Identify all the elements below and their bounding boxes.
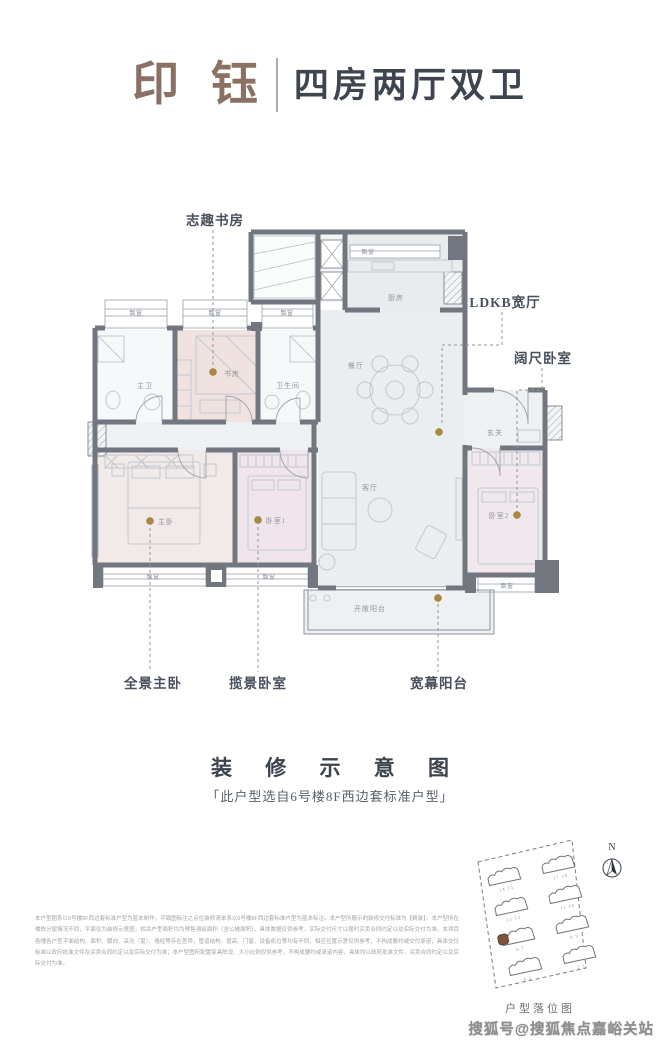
room-label-living: 客厅: [362, 483, 378, 492]
site-buildings: 14 15 17 18 13 12 11 10 6 7 8 9: [487, 854, 598, 984]
north-arrow: N: [603, 842, 621, 877]
callout-view-bedroom: 揽景卧室: [229, 675, 287, 691]
building: 13 12: [494, 896, 530, 924]
watermark: 搜狐号@搜狐焦点嘉峪关站: [394, 1018, 654, 1039]
floorplan-page: 印 钰 四房两厅双卫: [0, 0, 660, 1046]
room-label-foyer: 玄关: [487, 428, 503, 437]
callout-ldkb: LDKB宽厅: [469, 294, 540, 310]
header: 印 钰 四房两厅双卫: [0, 58, 660, 112]
room-label-dining: 餐厅: [348, 361, 364, 370]
svg-text:8 9: 8 9: [570, 933, 579, 940]
building: 2 1: [562, 944, 598, 972]
building: 14 15: [487, 866, 523, 894]
svg-text:2 1: 2 1: [577, 963, 586, 970]
bay-window-label: 飘窗: [262, 573, 275, 581]
sitemap-svg: N 14 15 17 18 13 12 11 10: [460, 828, 660, 1003]
caption-note: 「此户型选自6号楼8F西边套标准户型」: [0, 786, 660, 805]
north-label: N: [608, 842, 615, 853]
bay-window-label: 飘窗: [146, 573, 159, 581]
building: 4 3: [508, 956, 544, 984]
sitemap-label: 户型落位图: [460, 1000, 620, 1016]
caption-title: 装 修 示 意 图: [0, 752, 660, 782]
bay-window-label: 飘窗: [500, 582, 513, 590]
disclaimer-text: 本户型图系以6号楼8F西边套标准户型为蓝本制作，平面图标注之点位装修清单系以6号…: [35, 914, 459, 970]
building-highlighted: 6 7: [497, 926, 537, 955]
callout-study-corner: 志趣书房: [186, 212, 244, 228]
bay-window-label: 飘窗: [280, 309, 293, 317]
room-label-balcony: 开敞阳台: [354, 604, 386, 613]
room-label-master-bath: 主卫: [137, 381, 153, 390]
svg-text:13 12: 13 12: [506, 915, 522, 923]
bay-window-label: 飘窗: [361, 248, 374, 256]
svg-text:4 3: 4 3: [523, 975, 532, 982]
callout-wide-bedroom: 阔尺卧室: [514, 350, 572, 366]
svg-text:17 18: 17 18: [553, 873, 569, 881]
room-label-bedroom1: 卧室1: [266, 516, 287, 525]
header-divider: [276, 58, 278, 112]
callout-panoramic-master: 全景主卧: [123, 675, 182, 691]
floorplan-svg: 主卫 书房 卫生间 厨房 餐厅 客厅 玄关 主卧 卧室1 卧室2 开敞阳台 飘窗…: [80, 210, 580, 700]
bay-window-label: 飘窗: [208, 309, 221, 317]
pier-inset: [211, 570, 222, 582]
building: 11 10: [548, 884, 584, 912]
building: 17 18: [541, 854, 577, 882]
callout-wide-balcony: 宽幕阳台: [410, 675, 468, 691]
svg-text:6 7: 6 7: [516, 945, 525, 952]
building: 8 9: [555, 914, 591, 942]
svg-text:11 10: 11 10: [560, 903, 576, 911]
room-label-study: 书房: [224, 369, 240, 378]
brand-name: 印 钰: [132, 62, 268, 109]
layout-name: 四房两厅双卫: [294, 68, 528, 103]
room-label-master: 主卧: [158, 517, 174, 526]
room-label-bedroom2: 卧室2: [489, 511, 510, 520]
room-label-bathroom: 卫生间: [276, 381, 300, 390]
svg-text:14 15: 14 15: [499, 885, 515, 893]
room-label-kitchen: 厨房: [388, 293, 404, 302]
bay-window-label: 飘窗: [129, 309, 142, 317]
unit-location-marker: [497, 934, 509, 946]
